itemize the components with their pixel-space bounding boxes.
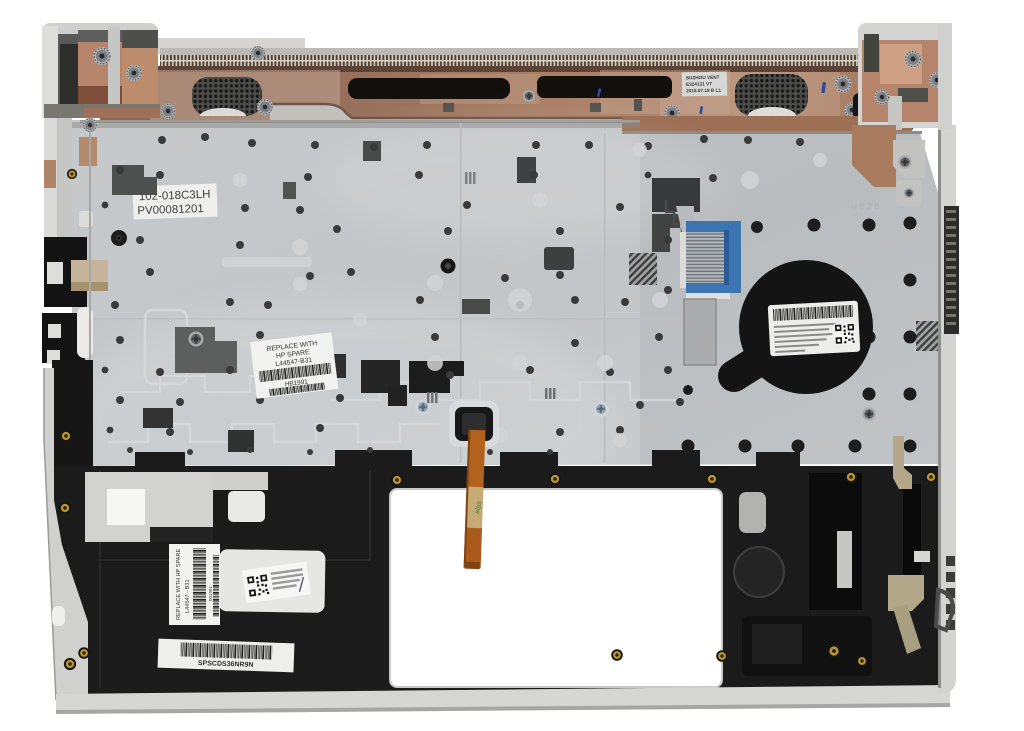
svg-text:SUZHOU VENT: SUZHOU VENT [686, 75, 720, 81]
svg-text:2018.07.18 B L1: 2018.07.18 B L1 [686, 88, 721, 94]
svg-text:PV00081201: PV00081201 [137, 203, 204, 217]
svg-text:REPLACE WITH HP SPARE: REPLACE WITH HP SPARE [176, 548, 182, 620]
svg-text:001991: 001991 [208, 586, 213, 601]
svg-text:L44547 - B31: L44547 - B31 [185, 579, 191, 613]
svg-text:u 8 2 6: u 8 2 6 [852, 201, 880, 212]
svg-text:E324131 VT: E324131 VT [686, 81, 712, 86]
